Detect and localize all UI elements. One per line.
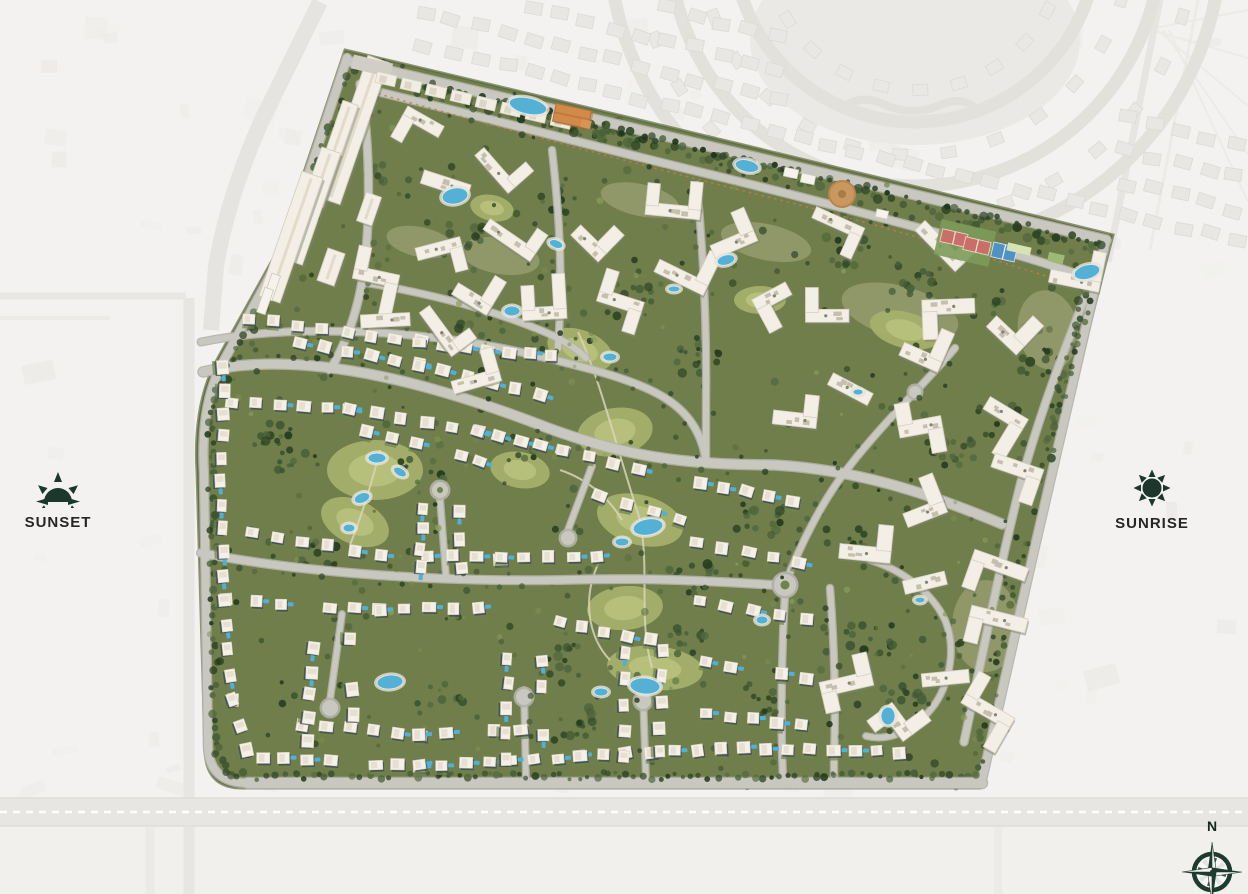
sunset-icon — [35, 470, 81, 508]
sunrise-icon — [1132, 467, 1172, 509]
compass-north-label: N — [1196, 818, 1228, 834]
sunset-label: SUNSET — [14, 514, 102, 531]
masterplan-stage: SUNSET SUNRISE N — [0, 0, 1248, 894]
sunrise-legend: SUNRISE — [1105, 467, 1199, 532]
masterplan-aerial-map — [0, 0, 1248, 894]
compass-north-indicator: N — [1178, 818, 1248, 894]
sunrise-label: SUNRISE — [1105, 515, 1199, 532]
sunset-legend: SUNSET — [14, 470, 102, 531]
compass-rose-icon — [1178, 835, 1248, 894]
